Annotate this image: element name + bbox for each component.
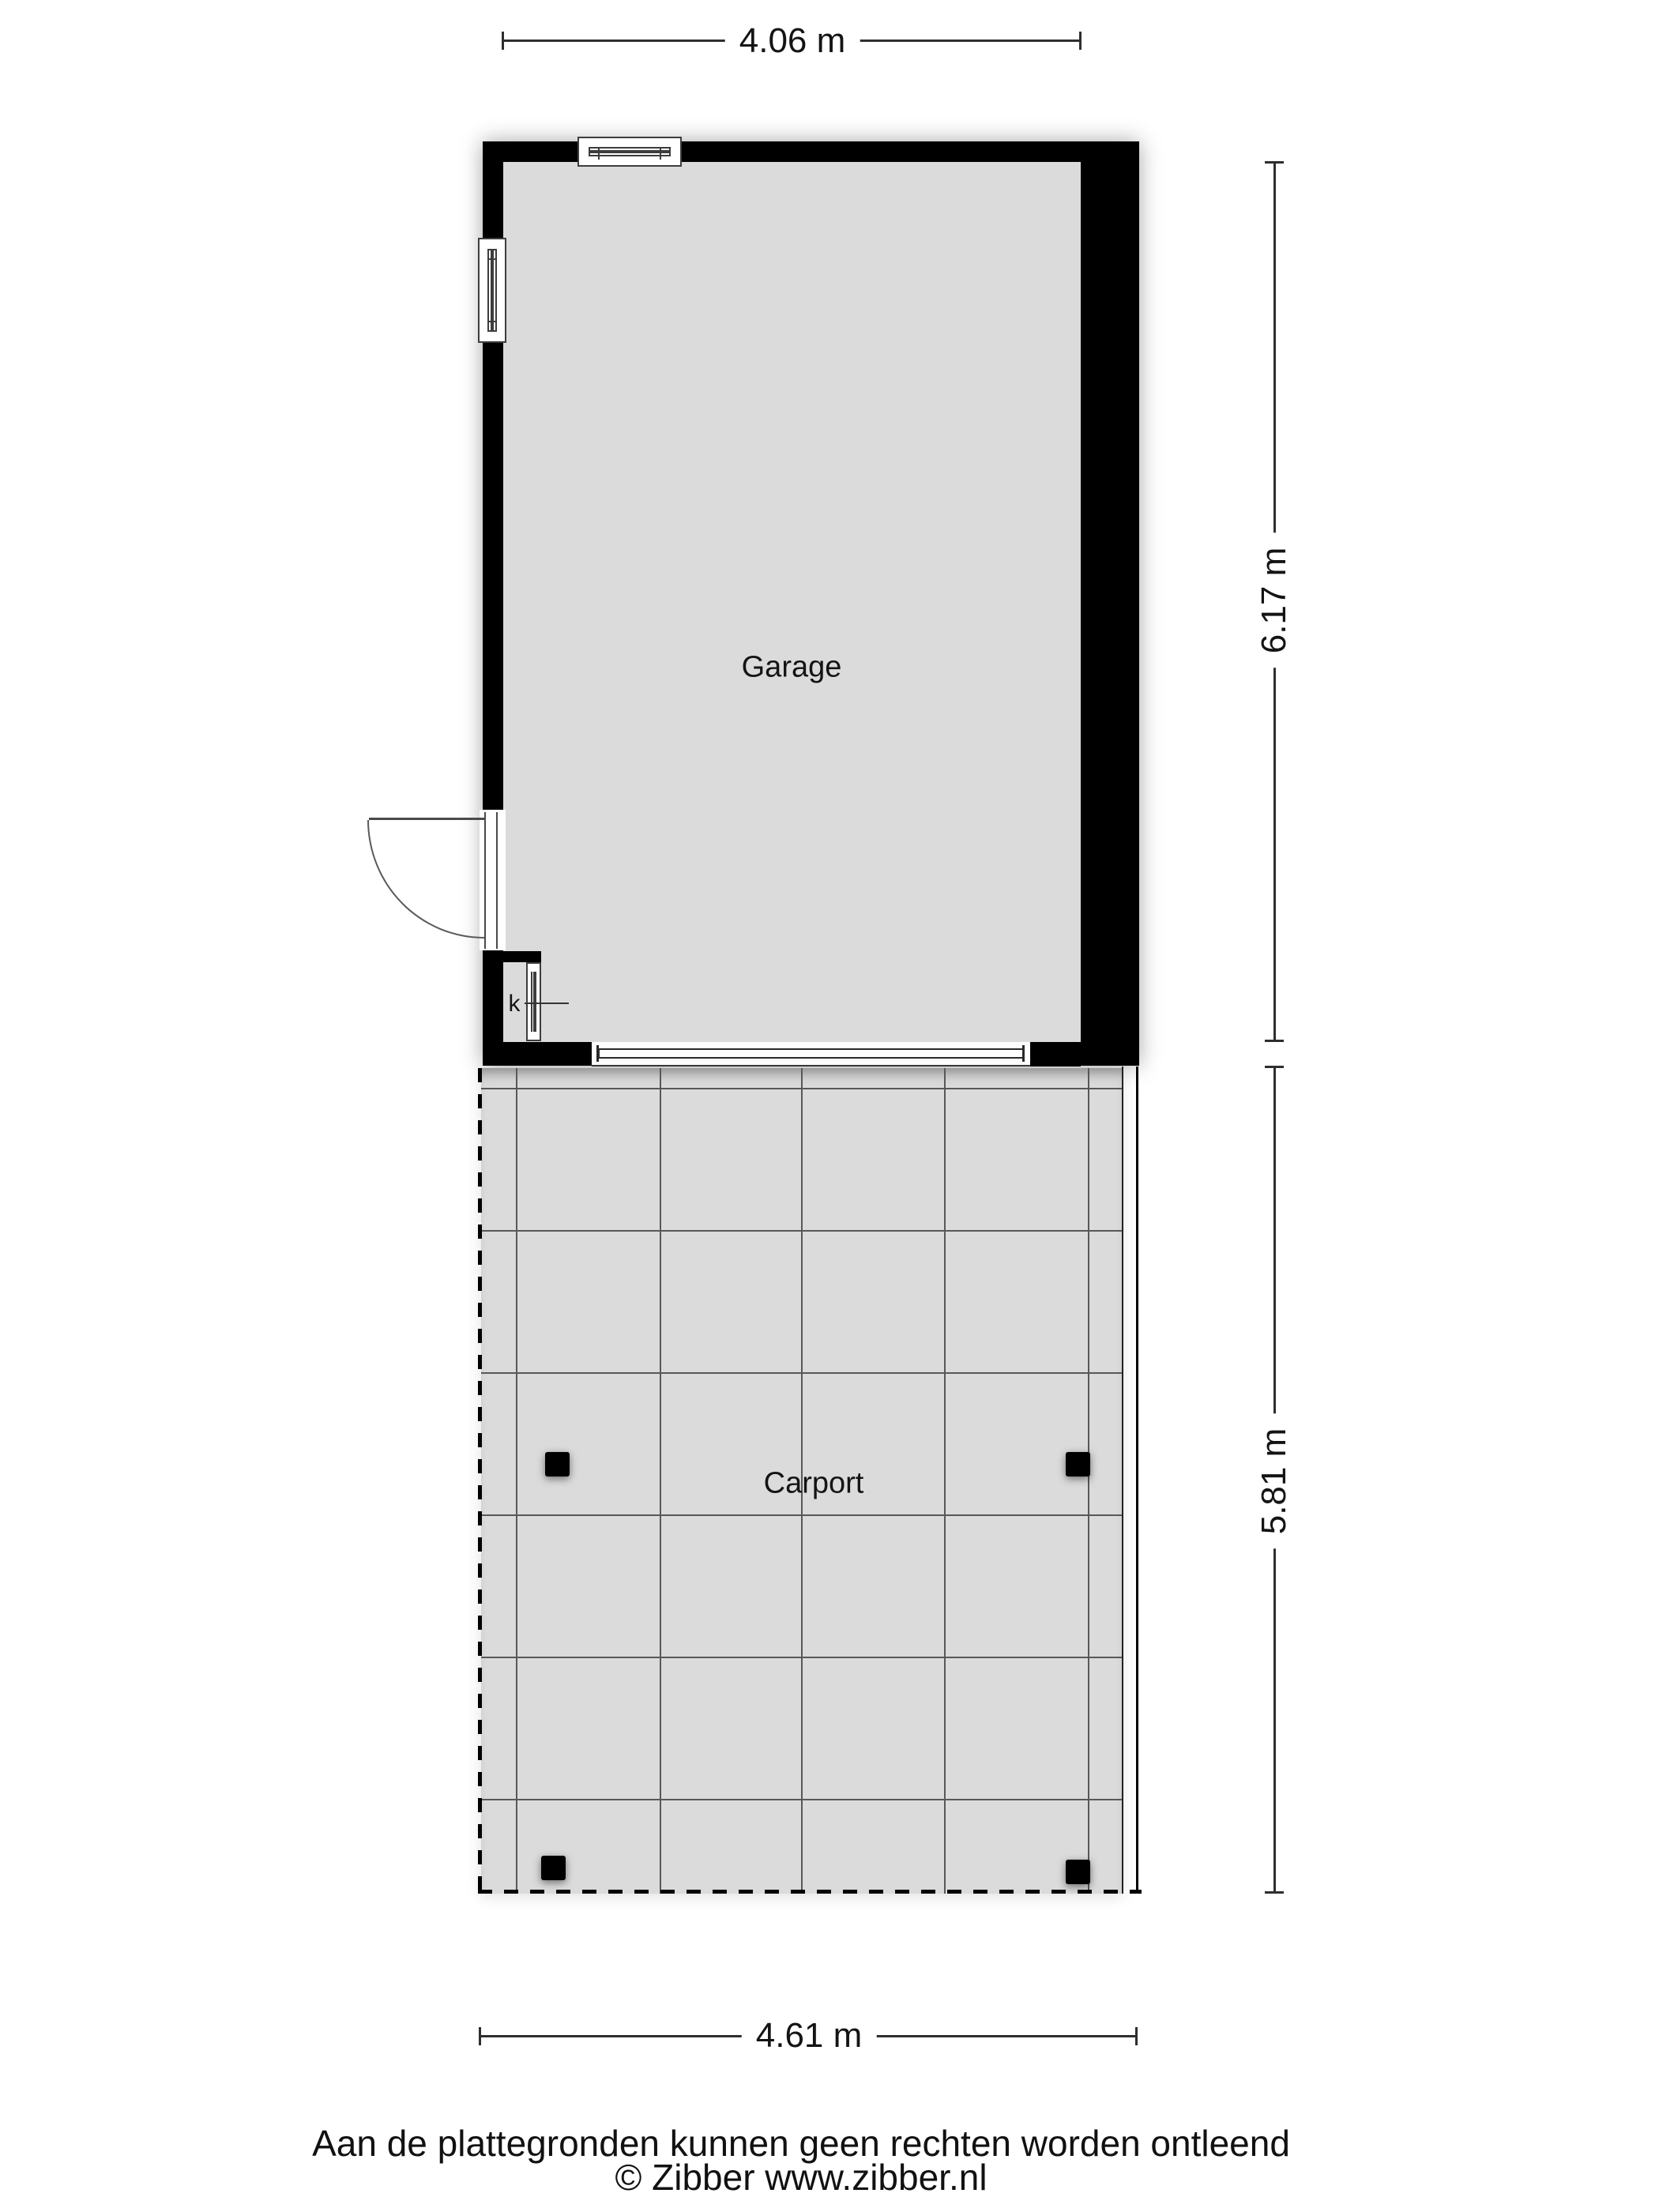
closet-louvre-lines <box>531 972 536 1032</box>
carport-grid-line <box>481 1088 1122 1089</box>
window-left-wall <box>478 238 506 343</box>
footer-copyright: © Zibber www.zibber.nl <box>615 2156 987 2199</box>
garage-floor <box>503 162 1081 1042</box>
window-top-wall <box>577 137 682 167</box>
carport-grid-line <box>481 1799 1122 1800</box>
closet-label: k <box>509 991 521 1018</box>
door-jamb <box>484 812 486 949</box>
dimension-end-tick <box>479 2027 481 2045</box>
garage-door-end-tick <box>596 1045 599 1062</box>
carport-post <box>1066 1452 1090 1477</box>
dimension-end-tick <box>1265 161 1284 164</box>
door-swing-arc <box>367 820 484 939</box>
window-mullion <box>598 147 600 160</box>
window-mullion <box>660 147 661 160</box>
carport-room-label: Carport <box>764 1467 864 1501</box>
window-mullion <box>487 321 497 322</box>
window-mullion <box>487 258 497 260</box>
carport-boundary-right <box>1122 1066 1123 1894</box>
closet-wall <box>503 951 541 962</box>
carport-post <box>545 1452 570 1477</box>
garage-door-end-tick <box>1022 1045 1025 1062</box>
dimension-label-garage-width: 4.06 m <box>725 21 860 61</box>
carport-grid-line <box>481 1657 1122 1658</box>
dimension-label-carport-width: 4.61 m <box>742 2016 877 2056</box>
garage-wall-corner <box>1030 1042 1081 1066</box>
carport-post <box>1066 1860 1090 1884</box>
garage-room-label: Garage <box>742 651 842 685</box>
door-jamb <box>496 812 498 949</box>
dimension-label-garage-depth: 6.17 m <box>1255 533 1294 668</box>
dimension-end-tick <box>1079 32 1082 50</box>
dimension-end-tick <box>1265 1040 1284 1042</box>
carport-grid-line <box>481 1230 1122 1232</box>
carport-grid-line <box>1088 1068 1089 1894</box>
dimension-end-tick <box>1135 2027 1138 2045</box>
dimension-end-tick <box>1265 1891 1284 1894</box>
carport-post <box>541 1856 566 1880</box>
carport-grid-line <box>660 1068 661 1894</box>
carport-grid-line <box>481 1514 1122 1516</box>
closet-louvre-door <box>526 962 541 1041</box>
garage-door-panel <box>598 1048 1025 1059</box>
window-glazing <box>487 249 497 332</box>
dimension-end-tick <box>1265 1066 1284 1068</box>
dimension-end-tick <box>502 32 504 50</box>
window-glazing <box>589 147 671 156</box>
carport-boundary-dashed-left <box>478 1068 482 1896</box>
carport-boundary-dashed-bottom <box>478 1890 1142 1894</box>
closet-leader-line <box>525 1003 569 1004</box>
carport-grid-line <box>944 1068 946 1894</box>
dimension-label-carport-depth: 5.81 m <box>1255 1414 1294 1549</box>
carport-boundary-right <box>1136 1066 1138 1894</box>
floor-plan-page: 4.06 m Garage k <box>0 0 1659 2212</box>
carport-grid-line <box>481 1372 1122 1374</box>
carport-grid-line <box>516 1068 517 1894</box>
